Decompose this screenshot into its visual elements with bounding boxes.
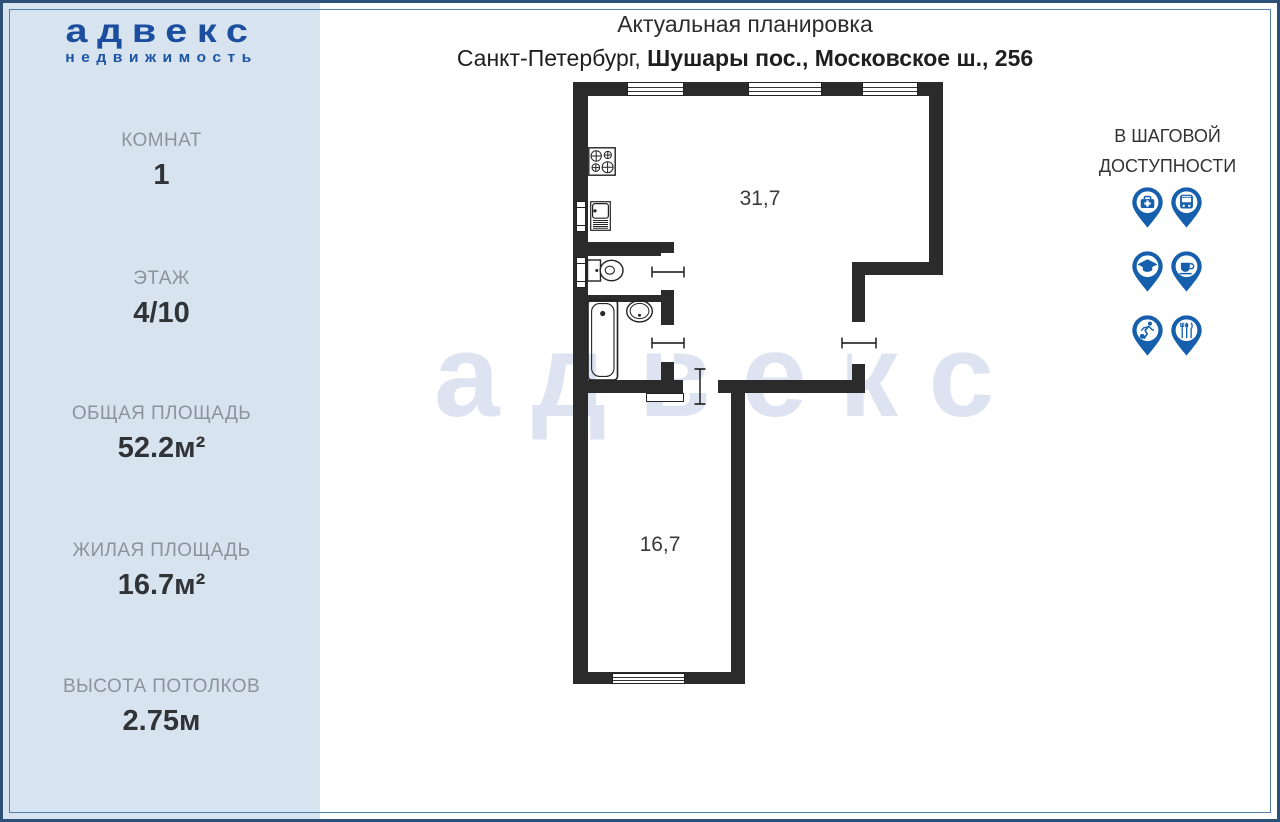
radiator-symbol: [576, 201, 586, 232]
room-area-living: 31,7: [710, 186, 810, 212]
logo-tagline-text: недвижимость: [0, 51, 333, 66]
wall-wc-top: [573, 242, 674, 256]
wall-step-horizontal: [852, 262, 943, 275]
page-title: Актуальная планировка: [320, 11, 1170, 38]
logo-brand-text: адвекс: [0, 13, 352, 49]
stat-floor: ЭТАЖ 4/10: [3, 268, 320, 331]
bus-pin-icon: [1170, 186, 1203, 229]
cafe-pin-icon: [1170, 250, 1203, 293]
stat-total-area: ОБЩАЯ ПЛОЩАДЬ 52.2м²: [3, 403, 320, 466]
window-symbol: [627, 82, 684, 96]
room-area-bedroom: 16,7: [610, 532, 710, 558]
logo: адвекс недвижимость: [3, 13, 320, 66]
wall-hall-bottom: [573, 380, 865, 393]
stat-rooms: КОМНАТ 1: [3, 130, 320, 193]
address-city: Санкт-Петербург,: [457, 45, 647, 71]
washbasin-symbol: [625, 299, 654, 325]
stat-living-area: ЖИЛАЯ ПЛОЩАДЬ 16.7м²: [3, 540, 320, 603]
radiator-symbol: [576, 257, 586, 288]
stat-floor-value: 4/10: [3, 295, 320, 331]
stat-ceiling-height-label: ВЫСОТА ПОТОЛКОВ: [3, 676, 320, 698]
stat-total-area-label: ОБЩАЯ ПЛОЩАДЬ: [3, 403, 320, 425]
sport-pin-icon: [1131, 314, 1164, 357]
window-symbol: [612, 673, 685, 684]
kitchen-sink-symbol: [590, 201, 611, 231]
stat-total-area-value: 52.2м²: [3, 430, 320, 466]
stat-floor-label: ЭТАЖ: [3, 268, 320, 290]
stat-living-area-value: 16.7м²: [3, 567, 320, 603]
address-line: Санкт-Петербург, Шушары пос., Московское…: [320, 45, 1170, 72]
sidebar: адвекс недвижимость КОМНАТ 1 ЭТАЖ 4/10 О…: [3, 3, 320, 819]
walkable-title-line2: ДОСТУПНОСТИ: [1090, 151, 1245, 181]
stat-living-area-label: ЖИЛАЯ ПЛОЩАДЬ: [3, 540, 320, 562]
walkable-title: В ШАГОВОЙ ДОСТУПНОСТИ: [1090, 121, 1245, 181]
window-symbol: [862, 82, 918, 96]
wall-right: [929, 82, 943, 275]
flyer-page: адвекс недвижимость КОМНАТ 1 ЭТАЖ 4/10 О…: [0, 0, 1280, 822]
wall-bedroom-right: [731, 393, 745, 684]
restaurant-pin-icon: [1170, 314, 1203, 357]
bathtub-symbol: [587, 299, 619, 381]
stat-rooms-value: 1: [3, 157, 320, 193]
toilet-symbol: [586, 257, 626, 285]
stat-rooms-label: КОМНАТ: [3, 130, 320, 152]
door-swing-mark: [840, 335, 878, 351]
education-pin-icon: [1131, 250, 1164, 293]
door-leaf-bedroom: [646, 393, 684, 402]
door-swing-mark: [650, 264, 686, 280]
address-street: Шушары пос., Московское ш., 256: [647, 45, 1033, 71]
stat-ceiling-height: ВЫСОТА ПОТОЛКОВ 2.75м: [3, 676, 320, 739]
medical-pin-icon: [1131, 186, 1164, 229]
stove-symbol: [588, 147, 616, 176]
door-swing-mark: [650, 335, 686, 351]
door-swing-mark: [692, 367, 708, 406]
walkable-title-line1: В ШАГОВОЙ: [1090, 121, 1245, 151]
stat-ceiling-height-value: 2.75м: [3, 703, 320, 739]
window-symbol: [748, 82, 822, 96]
